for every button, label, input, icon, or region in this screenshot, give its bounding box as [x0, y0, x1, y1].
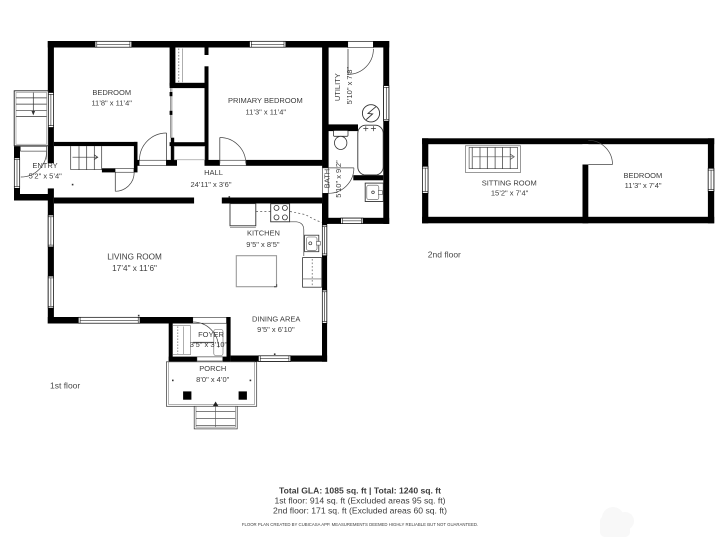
- svg-text:15’2" x 7’4": 15’2" x 7’4": [491, 189, 529, 198]
- svg-text:PRIMARY BEDROOM: PRIMARY BEDROOM: [228, 96, 303, 105]
- svg-text:2nd floor: 171 sq. ft (Exclude: 2nd floor: 171 sq. ft (Excluded areas 60…: [273, 505, 447, 515]
- svg-text:BEDROOM: BEDROOM: [92, 88, 131, 97]
- svg-text:KITCHEN: KITCHEN: [247, 228, 280, 237]
- svg-text:FOYER: FOYER: [198, 330, 224, 339]
- svg-text:Total GLA: 1085 sq. ft | Total: Total GLA: 1085 sq. ft | Total: 1240 sq.…: [279, 486, 441, 496]
- svg-text:FLOOR PLAN CREATED BY CUBICASA: FLOOR PLAN CREATED BY CUBICASA APP. MEAS…: [242, 522, 478, 527]
- svg-text:ENTRY: ENTRY: [32, 161, 57, 170]
- svg-text:HALL: HALL: [204, 168, 223, 177]
- svg-text:PORCH: PORCH: [199, 364, 226, 373]
- svg-text:UTILITY: UTILITY: [333, 73, 342, 101]
- svg-text:24’11" x 3’6": 24’11" x 3’6": [190, 180, 231, 189]
- svg-text:LIVING ROOM: LIVING ROOM: [107, 253, 162, 262]
- svg-text:11’8" x 11’4": 11’8" x 11’4": [91, 99, 132, 108]
- svg-text:11’3" x 11’4": 11’3" x 11’4": [246, 108, 287, 117]
- svg-text:8’0" x 4’0": 8’0" x 4’0": [196, 375, 230, 384]
- svg-text:DINING AREA: DINING AREA: [252, 315, 300, 324]
- svg-text:9’5" x 8’5": 9’5" x 8’5": [246, 240, 280, 249]
- svg-text:1st floor: 914 sq. ft (Exclude: 1st floor: 914 sq. ft (Excluded areas 95…: [274, 496, 445, 506]
- svg-text:2nd floor: 2nd floor: [428, 250, 461, 260]
- svg-text:5’2" x 5’4": 5’2" x 5’4": [29, 172, 63, 181]
- svg-text:5’10" x 9’2": 5’10" x 9’2": [334, 160, 343, 198]
- svg-text:BATH: BATH: [323, 169, 332, 188]
- svg-text:5’10" x 7’8": 5’10" x 7’8": [345, 67, 354, 105]
- svg-text:BEDROOM: BEDROOM: [624, 171, 663, 180]
- svg-text:1st floor: 1st floor: [50, 380, 80, 390]
- svg-text:17’4" x 11’6": 17’4" x 11’6": [112, 264, 157, 273]
- svg-text:SITTING ROOM: SITTING ROOM: [482, 179, 537, 188]
- svg-text:11’3" x 7’4": 11’3" x 7’4": [625, 181, 662, 190]
- svg-text:3’5" x 3’10": 3’5" x 3’10": [190, 340, 228, 349]
- svg-text:9’5" x 6’10": 9’5" x 6’10": [257, 325, 295, 334]
